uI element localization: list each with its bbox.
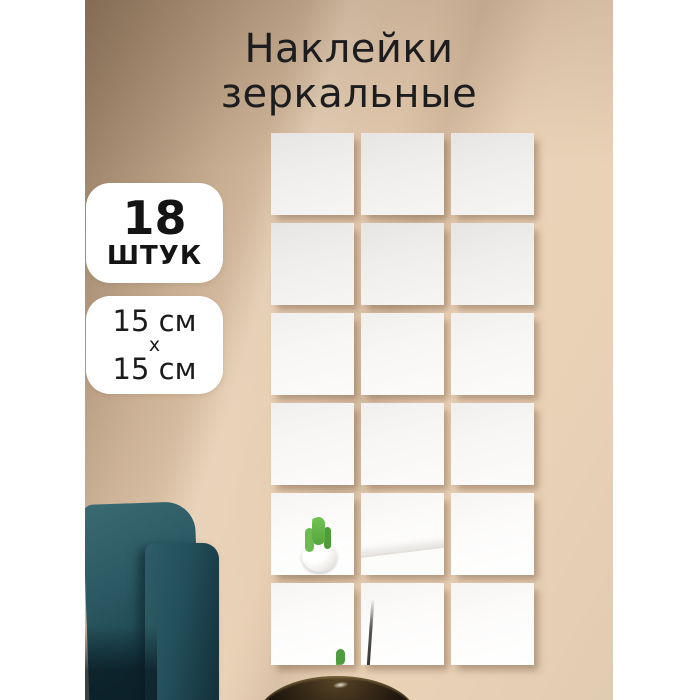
mirror-tile-r3c1 <box>271 313 354 395</box>
count-badge: 18 ШТУК <box>86 183 223 283</box>
room-photo: Наклейки зеркальные 18 ШТУК 15 см х 15 с… <box>85 0 613 700</box>
product-title-line2: зеркальные <box>85 72 613 117</box>
right-white-strip <box>613 0 700 700</box>
mirror-tile-r1c1 <box>271 133 354 215</box>
mirror-tile-r1c3 <box>451 133 534 215</box>
count-badge-value: 18 <box>122 195 186 241</box>
size-badge-line2: 15 см <box>113 354 197 384</box>
mirror-tile-r2c1 <box>271 223 354 305</box>
mirror-tile-r6c2 <box>361 583 444 665</box>
mirror-tile-r2c2 <box>361 223 444 305</box>
mirror-grid <box>271 133 534 665</box>
size-badge: 15 см х 15 см <box>86 296 223 394</box>
product-image-canvas: Наклейки зеркальные 18 ШТУК 15 см х 15 с… <box>0 0 700 700</box>
mirror-tile-r6c3 <box>451 583 534 665</box>
mirror-tile-r3c2 <box>361 313 444 395</box>
mirror-tile-r6c1 <box>271 583 354 665</box>
side-table <box>257 676 417 700</box>
mirror-tile-r3c3 <box>451 313 534 395</box>
left-white-strip <box>0 0 85 700</box>
count-badge-unit: ШТУК <box>107 241 202 271</box>
mirror-tile-r5c1 <box>271 493 354 575</box>
product-title: Наклейки зеркальные <box>85 27 613 117</box>
mirror-tile-r5c3 <box>451 493 534 575</box>
mirror-tile-r2c3 <box>451 223 534 305</box>
mirror-tile-r4c2 <box>361 403 444 485</box>
mirror-tile-r1c2 <box>361 133 444 215</box>
armchair-seat-shadow <box>85 626 157 700</box>
product-title-line1: Наклейки <box>85 27 613 72</box>
mirror-tile-r5c2 <box>361 493 444 575</box>
mirror-tile-r4c1 <box>271 403 354 485</box>
armchair <box>85 500 221 700</box>
size-badge-line1: 15 см <box>113 306 197 336</box>
side-table-highlight <box>333 681 349 689</box>
mirror-tile-r4c3 <box>451 403 534 485</box>
